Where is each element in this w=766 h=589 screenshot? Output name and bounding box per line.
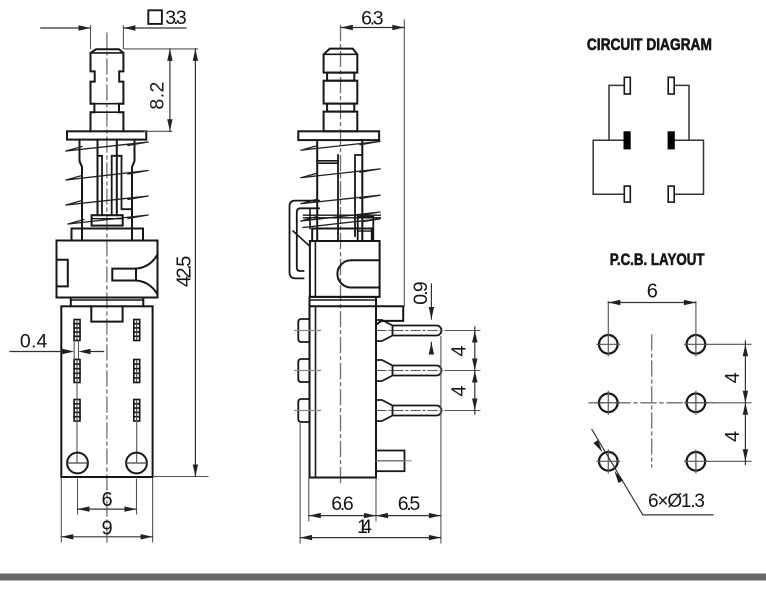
svg-text:6×Ø1.3: 6×Ø1.3 bbox=[648, 491, 705, 512]
svg-text:4: 4 bbox=[722, 431, 744, 442]
svg-text:6.6: 6.6 bbox=[331, 493, 354, 515]
svg-text:6: 6 bbox=[101, 489, 112, 511]
svg-text:6.3: 6.3 bbox=[361, 7, 384, 29]
svg-text:4: 4 bbox=[448, 345, 470, 356]
svg-text:3.3: 3.3 bbox=[165, 7, 187, 29]
svg-text:4: 4 bbox=[722, 372, 744, 383]
svg-text:9: 9 bbox=[101, 518, 112, 540]
svg-text:0.4: 0.4 bbox=[20, 330, 48, 352]
svg-text:0.9: 0.9 bbox=[410, 281, 432, 305]
svg-text:P.C.B. LAYOUT: P.C.B. LAYOUT bbox=[610, 251, 705, 269]
svg-text:14: 14 bbox=[357, 516, 372, 538]
svg-text:8.2: 8.2 bbox=[147, 82, 169, 110]
svg-text:6.5: 6.5 bbox=[398, 493, 421, 515]
svg-text:42.5: 42.5 bbox=[174, 256, 196, 288]
svg-text:CIRCUIT DIAGRAM: CIRCUIT DIAGRAM bbox=[587, 36, 712, 54]
svg-text:6: 6 bbox=[647, 281, 658, 303]
svg-text:4: 4 bbox=[448, 385, 470, 396]
